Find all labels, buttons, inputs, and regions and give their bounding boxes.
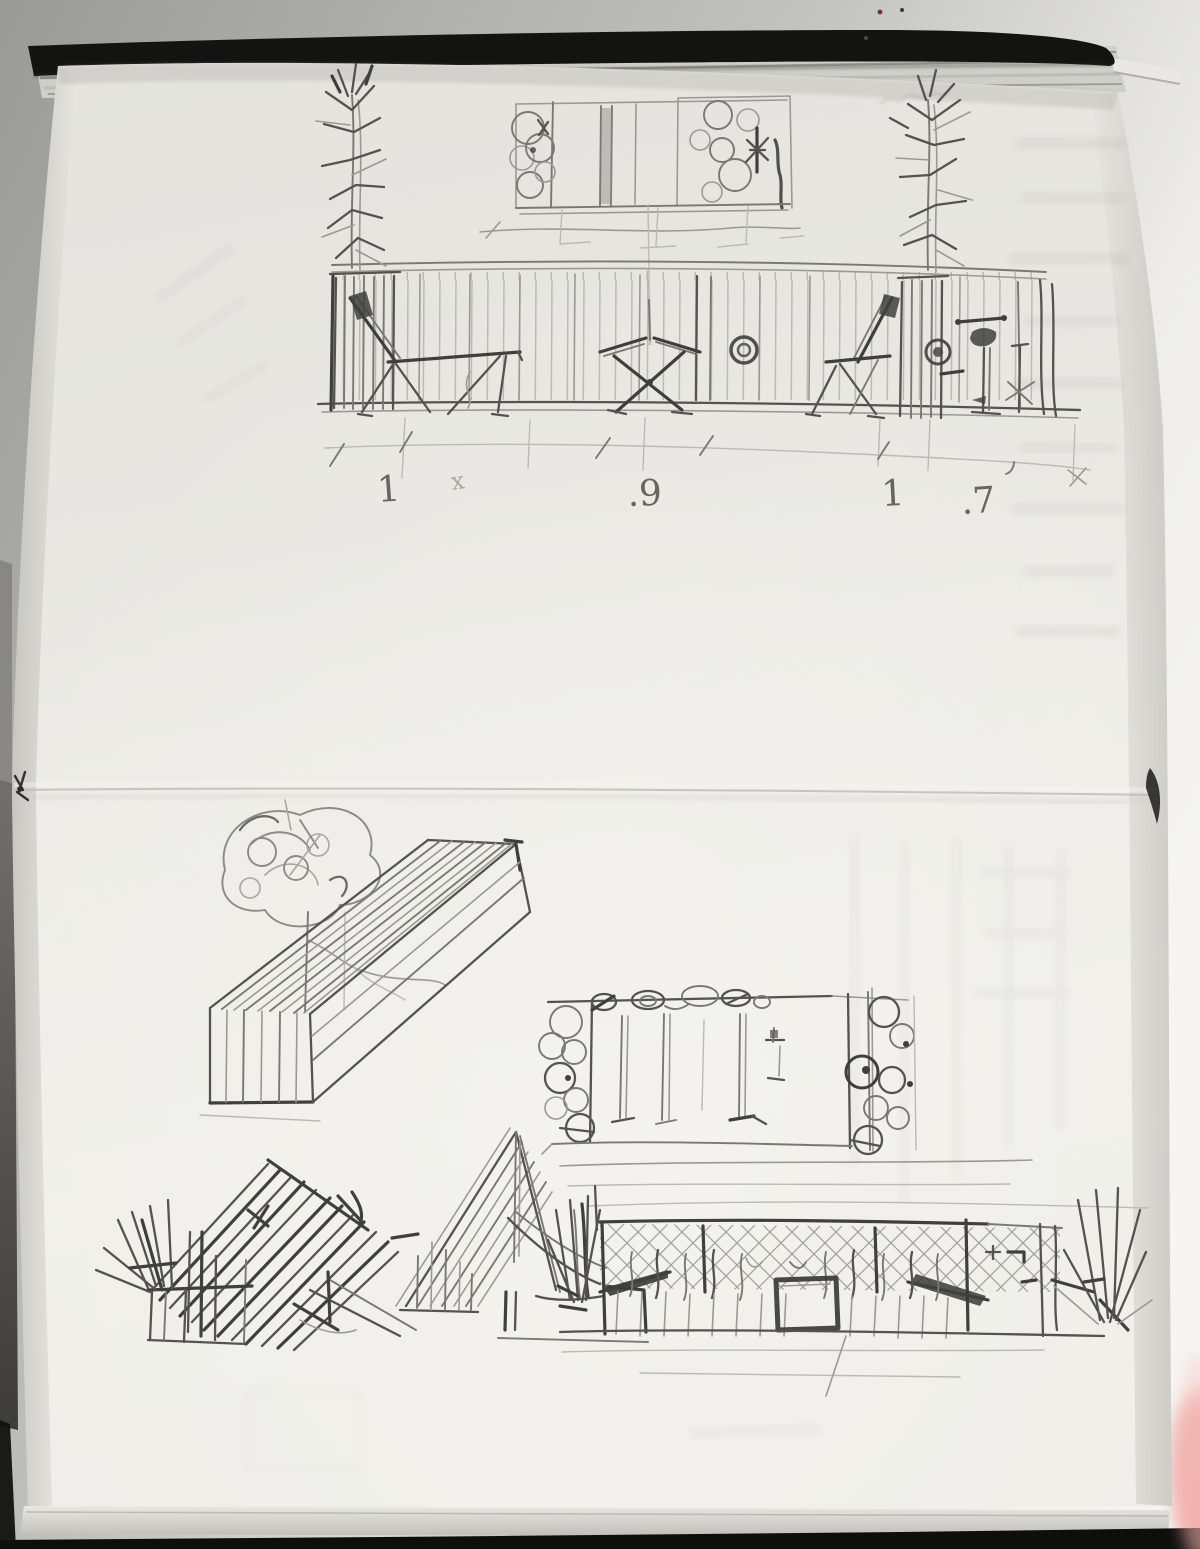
dimension-label-1-right: 1 <box>880 473 905 515</box>
dimension-label-1-left: 1 <box>376 468 402 510</box>
sketchbook-photo: 1 x .9 1 .7 <box>0 0 1200 1549</box>
left-binding-shadow <box>0 560 12 786</box>
dimension-label-point9: .9 <box>627 473 663 515</box>
dimension-label-point7: .7 <box>960 480 997 523</box>
chain-link-mesh <box>600 1224 1060 1292</box>
sketchbook-photo-canvas: 1 x .9 1 .7 <box>0 0 1200 1549</box>
railing-slats <box>332 272 1046 400</box>
